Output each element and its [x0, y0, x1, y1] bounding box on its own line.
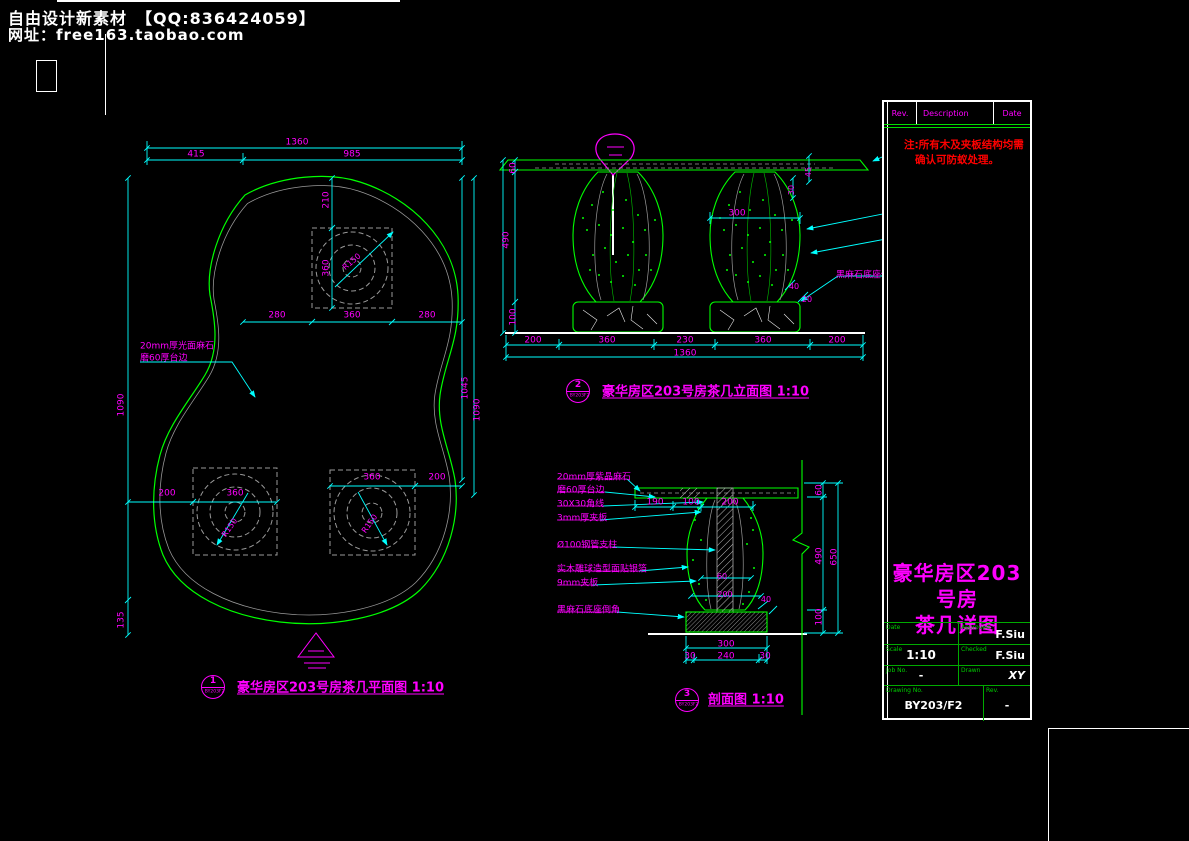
- annotation-label: 黑麻石底座倒角: [557, 607, 620, 616]
- description-column-header: Description: [917, 102, 994, 124]
- section-detail-bubble: 3 BY203F2: [675, 688, 699, 712]
- dim-label: 30: [684, 653, 695, 662]
- field-drawn: Drawn XY: [959, 666, 1030, 686]
- dim-label: 60: [717, 573, 727, 581]
- bubble-number: 2: [567, 380, 589, 392]
- titleblock-fields: Date Approved F.Siu Scale 1:10 Checked F…: [884, 622, 1030, 721]
- dim-label: 300: [717, 641, 734, 650]
- bubble-code: BY203F2: [679, 701, 696, 708]
- annotation-label: 磨60厚台边: [557, 487, 604, 496]
- title-block: Rev. Description Date 注:所有木及夹板结构均需 确认可防蚁…: [882, 100, 1032, 720]
- dim-label: 100: [682, 499, 699, 508]
- bubble-number: 3: [676, 689, 698, 701]
- field-drawing-no: Drawing No. BY203/F2: [884, 686, 984, 721]
- construction-note: 注:所有木及夹板结构均需 确认可防蚁处理。: [904, 138, 1026, 168]
- dim-label: 200: [717, 591, 732, 599]
- bubble-number: 1: [202, 676, 224, 688]
- bubble-code: BY203F2: [570, 392, 587, 399]
- dim-label: 30: [759, 653, 770, 662]
- annotation-label: 3mm厚夹板: [557, 515, 607, 524]
- field-rev: Rev. -: [984, 686, 1030, 721]
- date-column-header: Date: [994, 102, 1030, 124]
- field-scale: Scale 1:10: [884, 645, 959, 666]
- dim-label: 240: [717, 653, 734, 662]
- annotation-label: 实木雕球造型面贴银箔: [557, 566, 647, 575]
- bubble-code: BY203F2: [205, 688, 222, 695]
- dim-label: 190: [646, 499, 663, 508]
- plan-detail-bubble: 1 BY203F2: [201, 675, 225, 699]
- dim-label: 40: [761, 596, 771, 604]
- dim-label: 100: [816, 608, 825, 625]
- field-approved: Approved F.Siu: [959, 623, 1030, 645]
- field-checked: Checked F.Siu: [959, 645, 1030, 666]
- rev-column-header: Rev.: [884, 102, 917, 124]
- annotation-label: Ø100钢管支柱: [557, 542, 617, 551]
- annotation-label: 20mm厚紫晶麻石: [557, 474, 631, 483]
- field-job-no: Job No. -: [884, 666, 959, 686]
- field-date: Date: [884, 623, 959, 645]
- dim-label: 200: [721, 499, 738, 508]
- elevation-detail-bubble: 2 BY203F2: [566, 379, 590, 403]
- dim-label: 60: [816, 484, 825, 495]
- dim-label: 650: [831, 548, 840, 565]
- annotation-label: 30X30角线: [557, 501, 604, 510]
- annotation-label: 9mm夹板: [557, 580, 598, 589]
- view-caption: 剖面图 1:10: [708, 694, 784, 707]
- titleblock-header-row: Rev. Description Date: [884, 102, 1030, 124]
- dim-label: 490: [816, 547, 825, 564]
